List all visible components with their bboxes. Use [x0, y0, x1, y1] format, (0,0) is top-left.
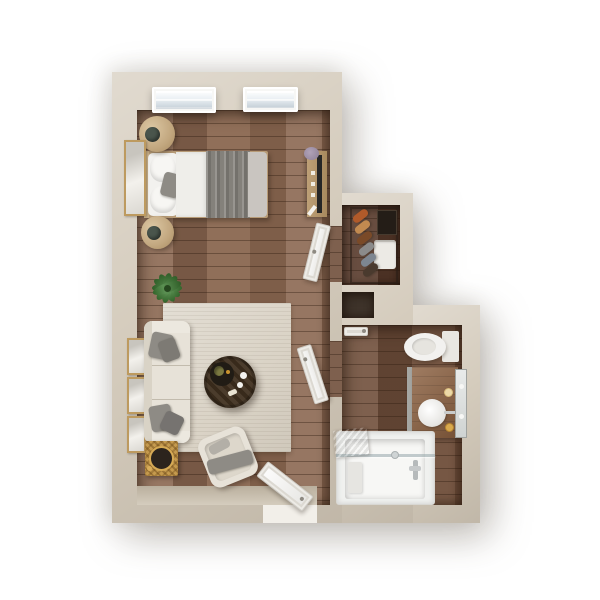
plant-pot — [145, 127, 160, 142]
table-knob — [147, 466, 152, 471]
skylight-icon — [152, 87, 216, 113]
towel — [333, 427, 370, 457]
cup — [240, 372, 247, 379]
candle — [444, 388, 453, 397]
skylight-glass — [156, 91, 212, 109]
floorplan-render — [0, 0, 600, 600]
blanket — [206, 151, 250, 218]
candle — [226, 370, 230, 374]
decor-item — [311, 193, 315, 197]
cushion-seam — [152, 365, 190, 366]
storage-niche — [342, 292, 374, 318]
mirror — [455, 369, 467, 438]
doorway-entry — [263, 505, 317, 523]
sofa — [144, 321, 190, 443]
door-handle — [312, 249, 317, 254]
foot-throw — [248, 152, 267, 217]
floorplan — [0, 0, 600, 600]
doorway-closet-hall — [330, 226, 342, 282]
decor-item — [227, 388, 237, 396]
skylight-icon — [243, 87, 298, 112]
candle — [445, 423, 454, 432]
tv — [317, 155, 322, 213]
duvet — [176, 152, 208, 217]
door-handle — [303, 357, 308, 362]
cushion-seam — [152, 399, 190, 400]
shelf-box — [377, 210, 397, 235]
plant-center — [164, 285, 171, 292]
cup — [237, 382, 243, 388]
doorway-bathroom — [330, 341, 342, 397]
coffee-table — [204, 356, 256, 408]
nightstand-basket — [141, 216, 174, 249]
decor-item — [311, 182, 315, 186]
decor-item — [307, 205, 317, 216]
candle — [214, 366, 224, 376]
toilet-seat — [412, 338, 436, 355]
toilet — [404, 333, 446, 361]
double-bed — [144, 151, 268, 218]
glass-knob — [391, 451, 399, 459]
open-door-leaf — [344, 327, 368, 336]
rattan-side-table — [145, 441, 178, 476]
vanity-counter — [412, 367, 458, 438]
flower-vase — [304, 147, 319, 160]
door-handle — [362, 329, 366, 333]
plant-pot — [147, 226, 161, 240]
tub-faucet — [409, 466, 421, 471]
decor-item — [311, 171, 315, 175]
vanity-sink — [418, 399, 446, 427]
skylight-glass — [247, 91, 294, 108]
mirror-reflection — [459, 414, 464, 419]
tub-step — [348, 462, 362, 493]
wall-art — [124, 140, 146, 216]
media-console — [307, 151, 327, 217]
table-top — [149, 446, 174, 471]
door-handle — [299, 496, 305, 502]
mirror-reflection — [459, 384, 464, 389]
